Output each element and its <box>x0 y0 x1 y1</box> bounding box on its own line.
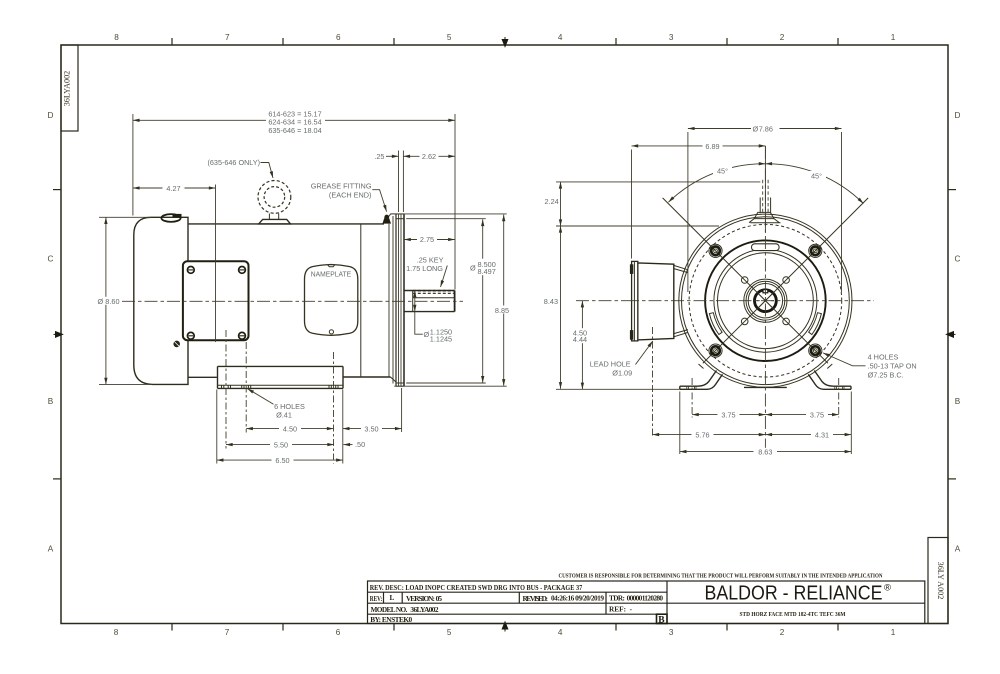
svg-text:6: 6 <box>336 33 341 42</box>
svg-text:6.50: 6.50 <box>275 456 289 465</box>
svg-text:4.31: 4.31 <box>815 430 829 439</box>
svg-text:2.24: 2.24 <box>544 197 558 206</box>
svg-text:Ø: Ø <box>424 330 430 339</box>
svg-text:1.75 LONG: 1.75 LONG <box>406 264 443 273</box>
svg-text:Ø: Ø <box>753 124 759 133</box>
svg-text:2.75: 2.75 <box>420 235 434 244</box>
svg-text:6: 6 <box>336 628 341 637</box>
svg-text:8: 8 <box>114 33 119 42</box>
svg-text:4.50: 4.50 <box>283 424 297 433</box>
svg-text:4: 4 <box>558 628 563 637</box>
svg-text:Ø.41: Ø.41 <box>276 411 292 420</box>
svg-text:Ø: Ø <box>470 264 476 273</box>
svg-text:C: C <box>48 255 54 264</box>
svg-text:1.1245: 1.1245 <box>430 335 452 344</box>
svg-text:04:26:16 09/20/2019: 04:26:16 09/20/2019 <box>551 593 604 602</box>
svg-text:REV. DESC: LOAD INOPC CREATED: REV. DESC: LOAD INOPC CREATED SWD DRG IN… <box>370 583 583 592</box>
svg-text:3.75: 3.75 <box>721 410 735 419</box>
svg-text:.50-13 TAP ON: .50-13 TAP ON <box>868 362 917 371</box>
svg-text:BY: ENSTEK0: BY: ENSTEK0 <box>370 615 412 624</box>
svg-text:STD HORZ FACE MTD 182-4TC TEFC: STD HORZ FACE MTD 182-4TC TEFC 36M <box>740 611 847 618</box>
svg-text:1: 1 <box>891 628 896 637</box>
svg-text:TDR: 000001120280: TDR: 000001120280 <box>609 594 663 603</box>
svg-text:GREASE FITTING: GREASE FITTING <box>311 182 372 191</box>
svg-text:6.89: 6.89 <box>705 142 719 151</box>
svg-text:VERSION: 05: VERSION: 05 <box>406 594 442 603</box>
svg-text:A: A <box>48 545 54 554</box>
svg-text:Ø7.25 B.C.: Ø7.25 B.C. <box>868 371 904 380</box>
svg-text:5: 5 <box>447 628 452 637</box>
svg-text:2.62: 2.62 <box>422 152 436 161</box>
svg-text:5: 5 <box>447 33 452 42</box>
svg-text:Ø: Ø <box>98 297 104 306</box>
svg-text:1: 1 <box>891 33 896 42</box>
svg-text:8.43: 8.43 <box>544 297 558 306</box>
svg-text:D: D <box>48 111 54 120</box>
svg-text:BALDOR - RELIANCE: BALDOR - RELIANCE <box>705 582 883 604</box>
svg-text:5.50: 5.50 <box>274 440 288 449</box>
svg-text:8.85: 8.85 <box>495 306 509 315</box>
svg-text:4.44: 4.44 <box>573 335 587 344</box>
svg-text:B: B <box>48 397 54 406</box>
svg-text:4.27: 4.27 <box>166 184 180 193</box>
svg-text:2: 2 <box>780 33 785 42</box>
svg-text:REF: -: REF: - <box>609 604 633 613</box>
svg-text:REVISED:: REVISED: <box>523 594 549 603</box>
svg-text:45°: 45° <box>717 167 728 176</box>
svg-text:REV:: REV: <box>370 594 383 603</box>
svg-text:(EACH END): (EACH END) <box>329 191 372 200</box>
svg-text:MODEL NO. 36LYA002: MODEL NO. 36LYA002 <box>371 605 439 614</box>
svg-text:.50: .50 <box>355 440 365 449</box>
svg-text:B: B <box>658 615 665 625</box>
svg-text:8.63: 8.63 <box>758 447 772 456</box>
svg-text:4: 4 <box>558 33 563 42</box>
svg-text:®: ® <box>884 583 891 594</box>
svg-text:NAMEPLATE: NAMEPLATE <box>311 272 352 279</box>
svg-text:8.60: 8.60 <box>105 297 119 306</box>
svg-text:8.497: 8.497 <box>478 267 496 276</box>
svg-text:LEAD HOLE: LEAD HOLE <box>590 359 631 368</box>
svg-text:C: C <box>955 255 961 264</box>
svg-text:635-646 = 18.04: 635-646 = 18.04 <box>268 126 321 135</box>
svg-text:7: 7 <box>225 33 230 42</box>
svg-text:4 HOLES: 4 HOLES <box>868 353 899 362</box>
svg-text:L: L <box>390 593 395 602</box>
svg-text:A: A <box>955 545 961 554</box>
svg-text:.25: .25 <box>374 152 384 161</box>
svg-text:45°: 45° <box>811 172 822 181</box>
svg-text:8: 8 <box>114 628 119 637</box>
svg-text:B: B <box>955 397 961 406</box>
svg-text:7: 7 <box>225 628 230 637</box>
svg-text:2: 2 <box>780 628 785 637</box>
svg-text:3.50: 3.50 <box>364 424 378 433</box>
svg-text:CUSTOMER IS RESPONSIBLE FOR DE: CUSTOMER IS RESPONSIBLE FOR DETERMINING … <box>559 573 883 580</box>
svg-text:3: 3 <box>669 628 674 637</box>
svg-text:3: 3 <box>669 33 674 42</box>
svg-text:7.86: 7.86 <box>759 124 773 133</box>
svg-text:5.76: 5.76 <box>695 430 709 439</box>
svg-text:(635-646 ONLY): (635-646 ONLY) <box>208 158 261 167</box>
svg-text:36LY A002: 36LY A002 <box>936 562 945 600</box>
svg-text:D: D <box>955 111 961 120</box>
svg-text:36LYA002: 36LYA002 <box>63 71 72 107</box>
svg-text:3.75: 3.75 <box>810 410 824 419</box>
svg-text:Ø1.09: Ø1.09 <box>612 368 632 377</box>
